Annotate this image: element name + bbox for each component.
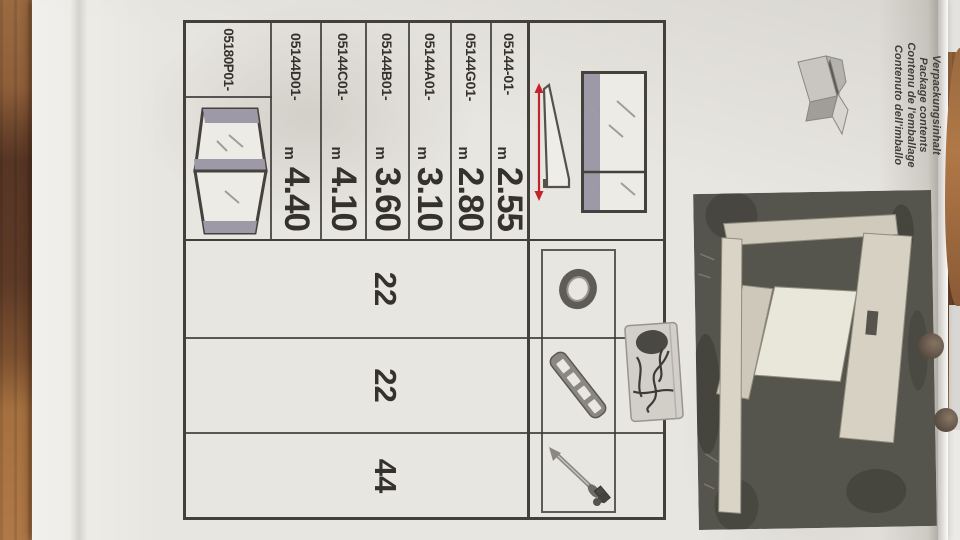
part-number: 05144C01- <box>336 33 352 100</box>
table-row: 05144D01- m4.40 <box>272 23 321 239</box>
length-value: 3.60 <box>370 167 405 231</box>
package-contents-header: Verpackungsinhalt Package contents Conte… <box>892 36 942 174</box>
part-number: 05144B01- <box>380 33 396 100</box>
table-row-door: 05180P01- <box>186 23 272 96</box>
perforated-strip-icon <box>543 343 613 427</box>
unit-label: m <box>372 147 389 160</box>
page-behind-edge <box>946 0 960 52</box>
length-value: 2.55 <box>492 167 527 231</box>
header-line-it: Contenuto dell'imballo <box>892 36 905 174</box>
punch-hole <box>934 408 958 432</box>
part-number: 05180P01- <box>222 28 237 90</box>
package-contents-table: 05144-01- m2.55 05144G01- m2.80 05144A01… <box>183 20 666 520</box>
hardware-bag-photo <box>621 320 688 424</box>
quantity-cell: 22 <box>186 241 528 337</box>
table-row: 05144C01- m4.10 <box>321 23 366 239</box>
table-row: 05144B01- m3.60 <box>366 23 409 239</box>
track-profile-length-icon <box>533 83 571 201</box>
table-row: 05144G01- m2.80 <box>451 23 491 239</box>
table-row: 05144-01- m2.55 <box>491 23 528 239</box>
paper-sheet: Verpackungsinhalt Package contents Conte… <box>32 0 948 540</box>
length-value: 3.10 <box>413 167 448 231</box>
table-row: 05144A01- m3.10 <box>409 23 451 239</box>
length-value: 4.10 <box>326 167 361 231</box>
unit-label: m <box>415 147 432 160</box>
part-number: 05144G01- <box>463 33 479 101</box>
folding-mirror-door-icon <box>189 105 269 237</box>
punch-hole <box>918 333 944 359</box>
length-value: 4.40 <box>279 167 314 231</box>
quantity-cell: 44 <box>186 434 528 518</box>
paper-crease <box>70 0 88 540</box>
header-line-en: Package contents <box>917 36 930 174</box>
header-line-fr: Contenu de l'emballage <box>905 36 918 174</box>
part-number: 05144D01- <box>289 33 305 100</box>
photo-of-instruction-page: Verpackungsinhalt Package contents Conte… <box>0 0 960 540</box>
mirror-door-front-icon <box>581 71 647 213</box>
packed-product-photo <box>693 190 937 530</box>
rotated-document: Verpackungsinhalt Package contents Conte… <box>0 0 960 540</box>
unit-label: m <box>456 147 473 160</box>
ring-icon <box>555 266 601 312</box>
anchor-screw-icon <box>545 443 611 509</box>
quantity-cell: 22 <box>186 339 528 432</box>
header-line-de: Verpackungsinhalt <box>930 36 943 174</box>
unit-label: m <box>328 147 345 160</box>
open-box-icon <box>788 44 852 140</box>
part-number: 05144A01- <box>422 33 438 100</box>
length-value: 2.80 <box>454 167 489 231</box>
unit-label: m <box>494 147 511 160</box>
part-number: 05144-01- <box>502 33 518 95</box>
unit-label: m <box>281 147 298 160</box>
